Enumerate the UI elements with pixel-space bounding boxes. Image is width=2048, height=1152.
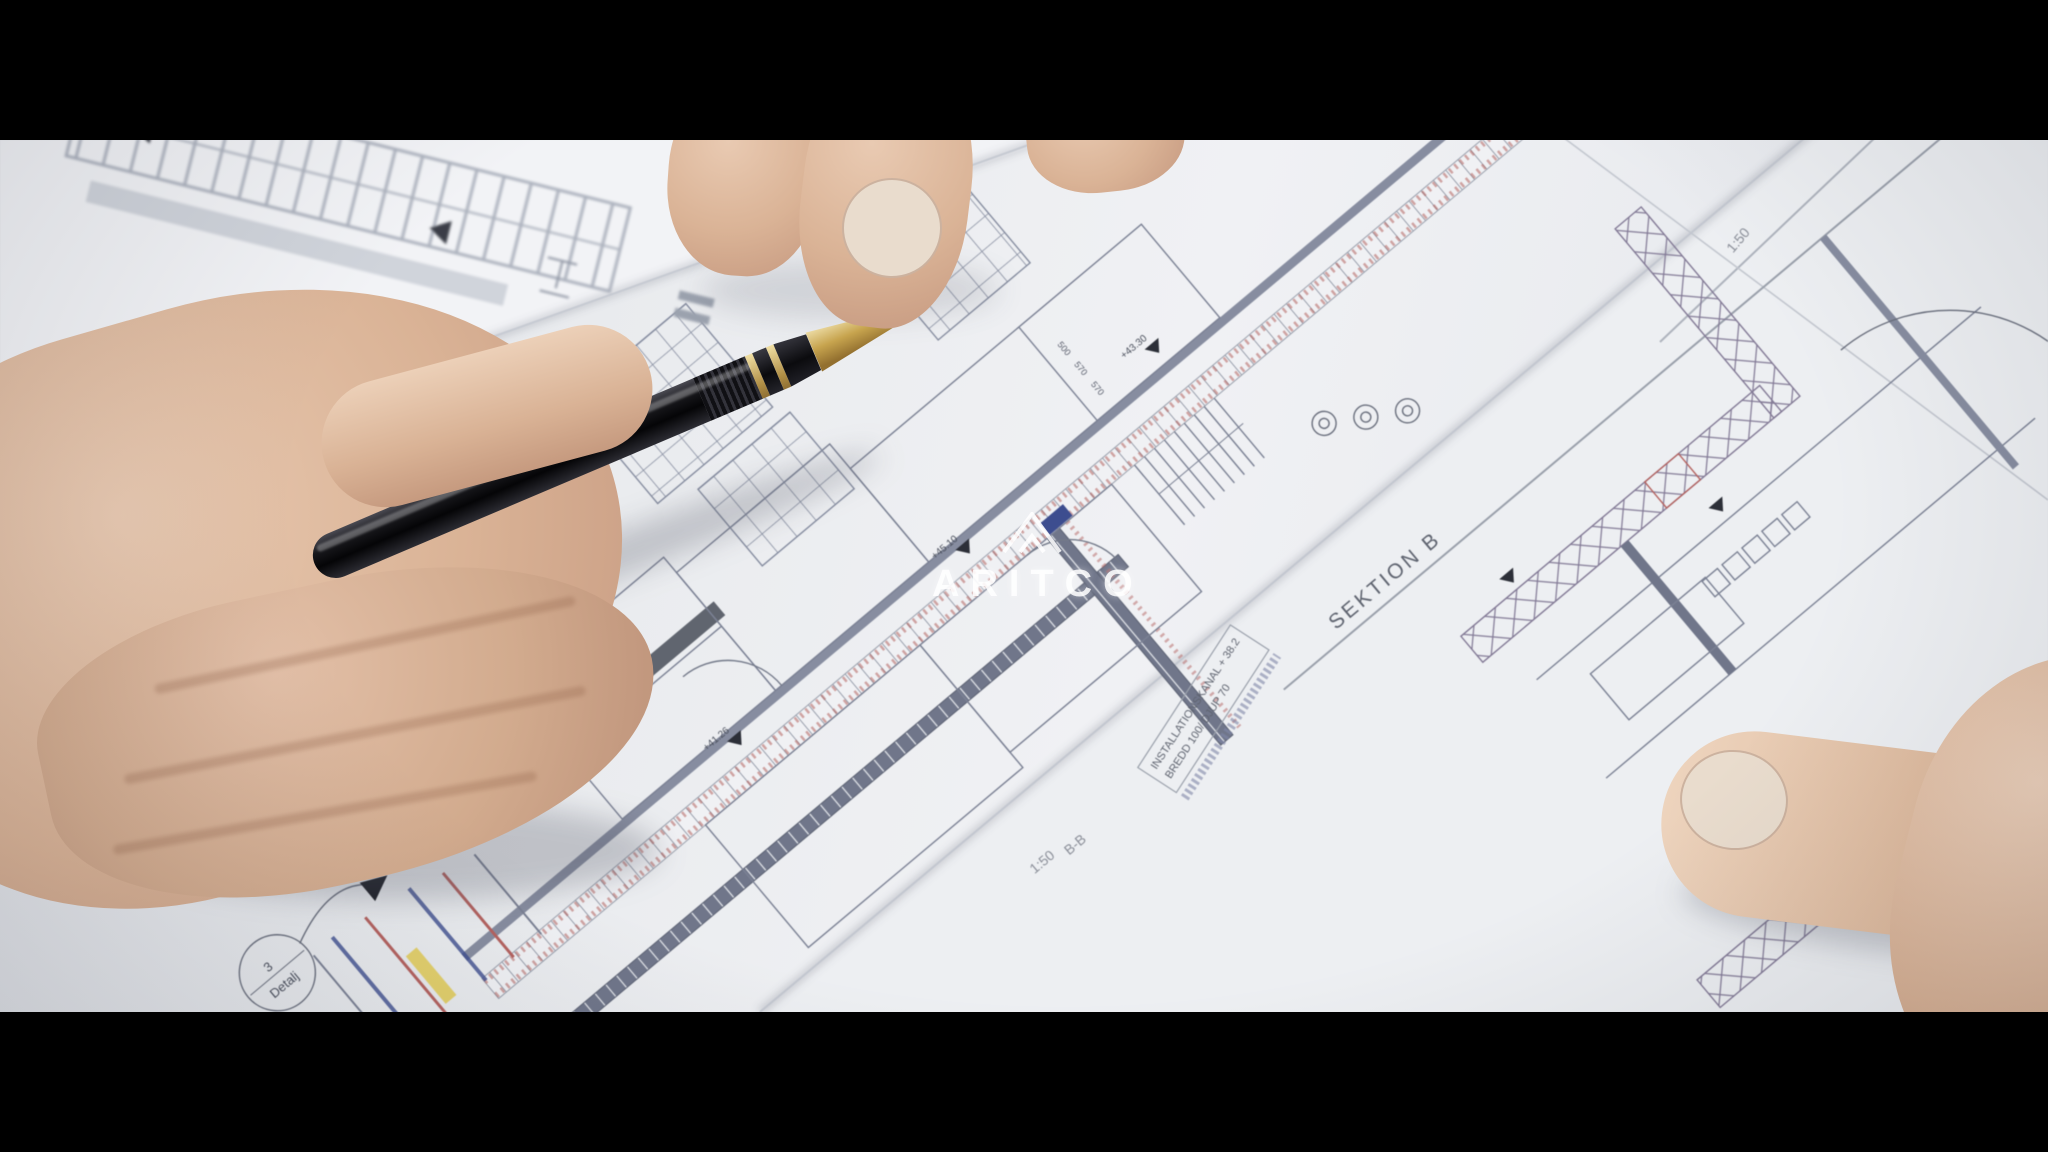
aritco-watermark: ARITCO: [932, 512, 1132, 606]
blueprint-photo: 1:50 B-B 1:50: [0, 140, 2048, 1012]
level-value: +43.30: [1119, 333, 1150, 362]
letterbox-top-bar: [0, 0, 2048, 140]
detail-number: 3: [260, 959, 275, 975]
watermark-text: ARITCO: [932, 563, 1132, 606]
dim-value: 570: [1089, 379, 1106, 397]
letterbox-bottom-bar: [0, 1012, 2048, 1152]
top-index-fingernail: [842, 178, 942, 278]
dim-value: 500: [1055, 340, 1072, 358]
dimension-labels: 500 570 570: [1055, 340, 1106, 398]
aritco-peak-logo-icon: [1000, 512, 1064, 554]
dim-value: 570: [1072, 359, 1089, 377]
stove-burner-circles: [1307, 360, 1424, 474]
video-frame: 1:50 B-B 1:50: [0, 0, 2048, 1152]
